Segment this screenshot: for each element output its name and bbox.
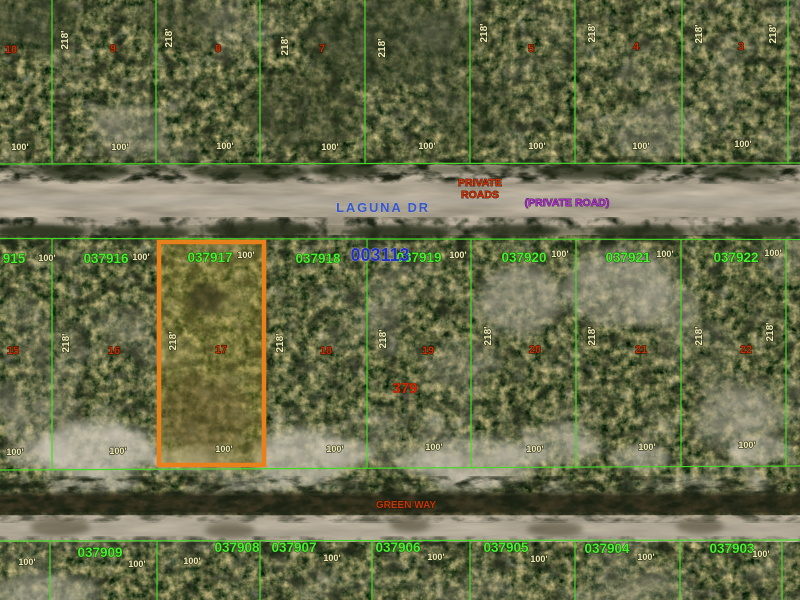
svg-text:15: 15 (7, 345, 19, 357)
svg-text:037904: 037904 (584, 541, 630, 556)
svg-text:100': 100' (734, 139, 751, 149)
svg-text:100': 100' (427, 552, 444, 562)
svg-text:037907: 037907 (271, 540, 316, 555)
svg-text:100': 100' (551, 249, 568, 259)
svg-text:218': 218' (479, 23, 490, 42)
svg-text:100': 100' (323, 553, 340, 563)
svg-text:037922: 037922 (713, 250, 758, 265)
svg-text:100': 100' (321, 142, 338, 152)
svg-text:100': 100' (656, 249, 673, 259)
svg-text:100': 100' (632, 141, 649, 151)
svg-text:PRIVATE: PRIVATE (458, 177, 502, 189)
svg-text:100': 100' (128, 559, 145, 569)
svg-text:003113: 003113 (350, 245, 409, 265)
svg-text:20: 20 (529, 344, 541, 356)
svg-text:8: 8 (215, 43, 221, 55)
svg-text:100': 100' (637, 552, 654, 562)
svg-text:100': 100' (526, 444, 543, 454)
svg-text:915: 915 (3, 251, 26, 266)
svg-text:037906: 037906 (375, 540, 421, 555)
svg-text:037917: 037917 (187, 250, 232, 265)
svg-text:218': 218' (61, 333, 72, 352)
svg-text:100': 100' (237, 250, 254, 260)
svg-text:218': 218' (168, 331, 179, 350)
svg-text:037909: 037909 (77, 545, 122, 560)
svg-text:100': 100' (326, 444, 343, 454)
svg-text:218': 218' (765, 322, 776, 341)
svg-text:037905: 037905 (483, 540, 529, 555)
svg-text:037920: 037920 (501, 250, 546, 265)
svg-text:100': 100' (738, 440, 755, 450)
svg-text:037916: 037916 (83, 251, 129, 266)
svg-text:100': 100' (418, 141, 435, 151)
svg-text:100': 100' (38, 253, 55, 263)
svg-text:100': 100' (216, 141, 233, 151)
svg-text:21: 21 (635, 344, 647, 356)
svg-text:100': 100' (132, 252, 149, 262)
svg-text:218': 218' (60, 30, 71, 49)
svg-text:16: 16 (108, 345, 120, 357)
svg-text:218': 218' (378, 329, 389, 348)
svg-text:037903: 037903 (709, 541, 755, 556)
svg-text:18: 18 (320, 345, 332, 357)
svg-text:(PRIVATE ROAD): (PRIVATE ROAD) (525, 197, 610, 209)
svg-text:100': 100' (530, 554, 547, 564)
svg-text:379: 379 (392, 380, 417, 397)
svg-text:3: 3 (738, 41, 744, 53)
svg-text:GREEN WAY: GREEN WAY (376, 500, 437, 511)
svg-text:ROADS: ROADS (461, 189, 499, 201)
svg-text:218': 218' (587, 23, 598, 42)
svg-text:9: 9 (110, 43, 116, 55)
svg-text:100': 100' (449, 250, 466, 260)
svg-text:LAGUNA DR: LAGUNA DR (336, 200, 430, 215)
svg-text:218': 218' (694, 24, 705, 43)
svg-text:100': 100' (638, 442, 655, 452)
svg-text:100': 100' (752, 549, 769, 559)
svg-text:100': 100' (111, 142, 128, 152)
svg-text:4: 4 (633, 41, 640, 53)
svg-text:100': 100' (109, 446, 126, 456)
svg-text:037908: 037908 (214, 540, 260, 555)
svg-text:7: 7 (319, 43, 325, 55)
svg-text:5: 5 (528, 43, 534, 55)
svg-text:218': 218' (377, 38, 388, 57)
svg-text:218': 218' (694, 326, 705, 345)
svg-text:218': 218' (280, 36, 291, 55)
svg-text:100': 100' (183, 556, 200, 566)
svg-text:19: 19 (422, 345, 434, 357)
svg-text:100': 100' (215, 444, 232, 454)
svg-text:218': 218' (275, 333, 286, 352)
svg-text:22: 22 (740, 344, 752, 356)
svg-text:218': 218' (587, 326, 598, 345)
svg-text:10: 10 (5, 44, 17, 56)
svg-text:037918: 037918 (295, 251, 341, 266)
svg-text:100': 100' (18, 557, 35, 567)
svg-text:037921: 037921 (605, 250, 651, 265)
svg-text:17: 17 (215, 344, 227, 356)
svg-text:100': 100' (764, 248, 781, 258)
svg-text:100': 100' (425, 442, 442, 452)
svg-text:218': 218' (768, 24, 779, 43)
svg-text:100': 100' (528, 141, 545, 151)
svg-text:100': 100' (6, 447, 23, 457)
svg-text:100': 100' (11, 142, 28, 152)
svg-text:218': 218' (483, 326, 494, 345)
svg-text:218': 218' (164, 28, 175, 47)
